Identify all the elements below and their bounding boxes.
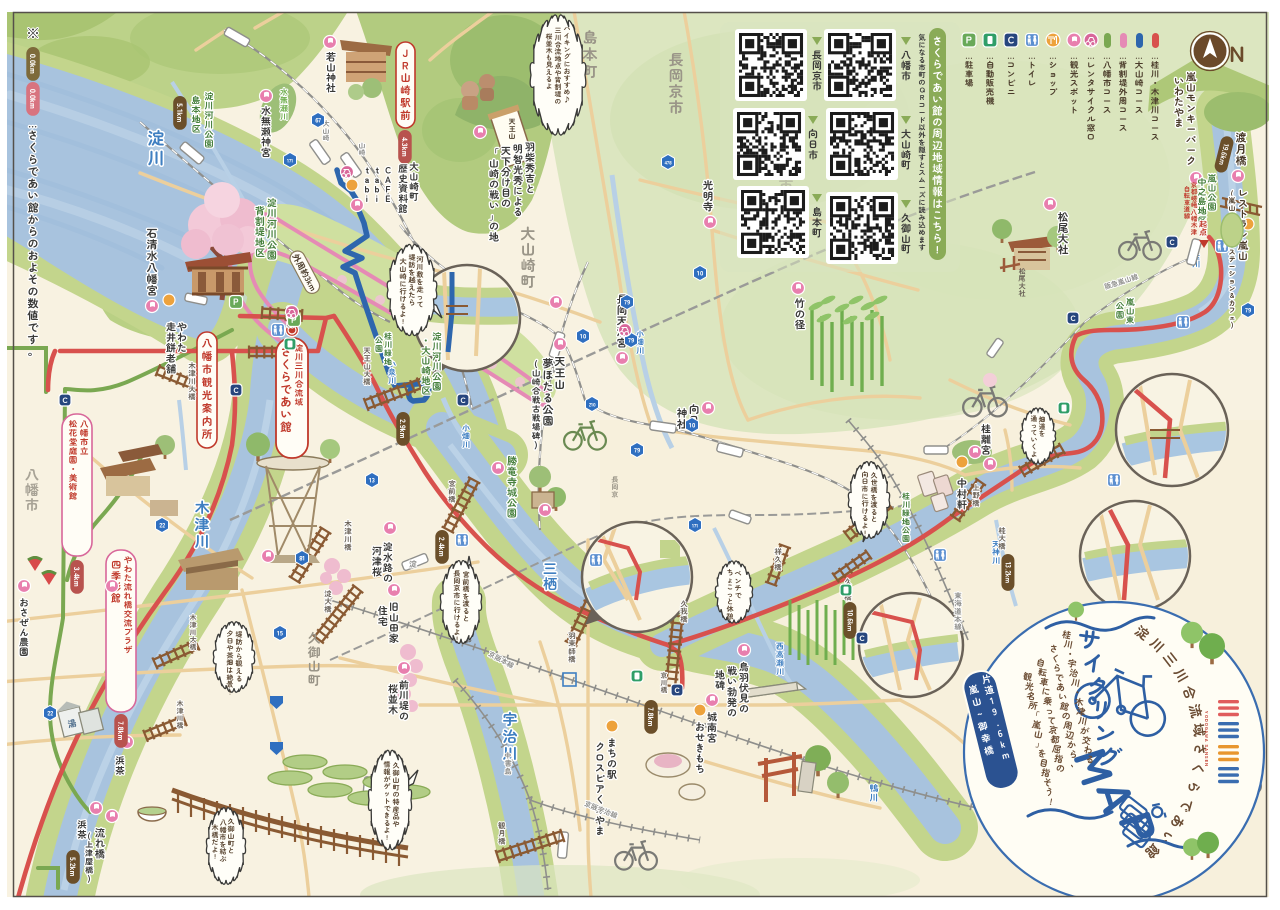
svg-text:八幡市: 八幡市 [901, 47, 911, 83]
svg-text:向日市: 向日市 [808, 126, 818, 162]
svg-text:松尾大社: 松尾大社 [1018, 267, 1026, 299]
svg-text:天下分け目の: 天下分け目の [501, 143, 511, 211]
svg-text:おせきもち: おせきもち [695, 719, 705, 776]
svg-text:C: C [674, 685, 679, 696]
svg-text:(嵐山ビジターズステーション&カフェ): (嵐山ビジターズステーション&カフェ) [1229, 189, 1237, 330]
svg-text:大山崎町: 大山崎町 [520, 223, 535, 292]
svg-text:桂大橋: 桂大橋 [997, 525, 1006, 552]
svg-text:C: C [233, 385, 238, 396]
svg-text:N: N [1229, 37, 1244, 69]
svg-text:桂川緑地公園: 桂川緑地公園 [901, 491, 910, 545]
svg-text:宮前橋を渡ると: 宮前橋を渡ると [463, 570, 470, 624]
svg-text:…大山崎コース: …大山崎コース [1135, 50, 1144, 116]
svg-text:八幡市: 八幡市 [25, 465, 40, 515]
svg-text:10.6km: 10.6km [844, 608, 855, 631]
svg-text:嵐山東: 嵐山東 [1126, 296, 1135, 326]
svg-text:走井餅老舗: 走井餅老舗 [165, 319, 177, 376]
svg-text:鳥羽伏見の: 鳥羽伏見の [739, 659, 750, 716]
svg-text:210: 210 [589, 402, 596, 409]
svg-text:夢ほたる公園: 夢ほたる公園 [543, 355, 554, 429]
svg-text:中書島: 中書島 [504, 750, 512, 777]
svg-text:若山神社: 若山神社 [325, 49, 336, 95]
svg-text:2.9km: 2.9km [397, 419, 408, 439]
svg-text:C: C [1169, 237, 1174, 248]
svg-text:河津桜: 河津桜 [372, 543, 382, 579]
svg-text:桂離宮: 桂離宮 [981, 421, 992, 457]
svg-text:天王山大橋: 天王山大橋 [363, 345, 371, 387]
svg-text:67: 67 [315, 115, 321, 125]
svg-text:171: 171 [692, 523, 698, 530]
svg-text:さくらであい館の周辺地域情報はこちら!: さくらであい館の周辺地域情報はこちら! [931, 34, 943, 258]
svg-text:81: 81 [299, 553, 305, 563]
svg-text:…駐車場: …駐車場 [964, 50, 974, 89]
svg-text:久御山町の特産品や: 久御山町の特産品や [392, 761, 400, 829]
svg-text:7.8km: 7.8km [115, 721, 126, 741]
svg-text:おさぜん農園: おさぜん農園 [19, 595, 29, 659]
svg-text:前川堤の: 前川堤の [399, 677, 409, 724]
svg-text:木津川橋: 木津川橋 [344, 518, 352, 552]
svg-text:旧山田家: 旧山田家 [389, 599, 399, 646]
svg-text:(山崎合戦古戦場碑): (山崎合戦古戦場碑) [531, 358, 541, 451]
svg-text:畑道を: 畑道を [1039, 414, 1046, 438]
svg-text:C: C [859, 633, 864, 644]
svg-text:山崎: 山崎 [359, 141, 366, 158]
svg-text:公園: 公園 [1116, 300, 1125, 321]
svg-text:まちの駅: まちの駅 [607, 735, 617, 782]
svg-text:5.1km: 5.1km [174, 102, 185, 122]
svg-text:2.4km: 2.4km [436, 537, 447, 557]
svg-text:住宅: 住宅 [378, 603, 389, 629]
svg-text:長岡京市: 長岡京市 [668, 49, 683, 118]
svg-text:・大山崎地区: ・大山崎地区 [420, 333, 431, 397]
svg-text:…トイレ: …トイレ [1028, 50, 1037, 89]
svg-text:水無瀬川: 水無瀬川 [280, 87, 289, 123]
svg-text:淀川河川公園: 淀川河川公園 [204, 90, 214, 151]
svg-text:明智光秀による: 明智光秀による [513, 141, 524, 219]
svg-text:C: C [62, 395, 67, 406]
svg-text:0.0km: 0.0km [27, 89, 38, 109]
svg-text:浜茶: 浜茶 [77, 817, 87, 841]
svg-text:嵐山公園: 嵐山公園 [1207, 172, 1217, 214]
svg-text:やわた: やわた [177, 319, 187, 355]
svg-text:…さくらであい館からのおよその数値です。: …さくらであい館からのおよその数値です。 [28, 115, 40, 359]
svg-text:0.0km: 0.0km [27, 54, 38, 74]
svg-text:起点: 起点 [1199, 219, 1207, 238]
svg-text:戦い勃発の: 戦い勃発の [726, 663, 738, 720]
svg-text:淀川: 淀川 [148, 124, 165, 169]
svg-text:城南宮: 城南宮 [706, 709, 718, 745]
svg-text:5.2km: 5.2km [67, 856, 78, 877]
svg-text:観月橋: 観月橋 [497, 820, 506, 847]
svg-text:木津川大橋: 木津川大橋 [189, 613, 197, 653]
svg-text:久御山町と: 久御山町と [228, 817, 235, 856]
svg-text:…ショップ: …ショップ [1049, 50, 1058, 98]
svg-text:鴨川: 鴨川 [869, 782, 878, 804]
svg-text:大山崎町: 大山崎町 [409, 159, 419, 203]
svg-text:三川合流地点や背割堤の: 三川合流地点や背割堤の [554, 25, 562, 106]
svg-text:長岡京市に行けるよ!: 長岡京市に行けるよ! [453, 569, 461, 645]
svg-text:…観光スポット: …観光スポット [1069, 50, 1079, 116]
svg-text:…レンタサイクル窓口: …レンタサイクル窓口 [1086, 50, 1096, 143]
svg-text:長岡京: 長岡京 [612, 475, 619, 500]
svg-text:島本町: 島本町 [811, 204, 822, 240]
svg-text:河川敷を走って: 河川敷を走って [416, 255, 424, 310]
svg-text:浜茶: 浜茶 [115, 753, 125, 777]
svg-text:夕日や茶畑は絶景!: 夕日や茶畑は絶景! [227, 629, 234, 697]
svg-text:P: P [233, 295, 239, 308]
svg-text:桜並木: 桜並木 [388, 681, 399, 717]
svg-text:…桂川・木津川コース: …桂川・木津川コース [1150, 50, 1161, 143]
svg-text:さくらであい館: さくらであい館 [279, 344, 292, 435]
svg-text:13: 13 [368, 475, 375, 485]
svg-text:桜並木も見えるよ: 桜並木も見えるよ [545, 31, 553, 91]
svg-text:嵐山モンキーパーク: 嵐山モンキーパーク [1186, 69, 1196, 168]
svg-text:…背割堤外周コース: …背割堤外周コース [1118, 50, 1128, 134]
svg-text:久御山町: 久御山町 [307, 628, 320, 689]
svg-text:クロスピアくみやま: クロスピアくみやま [595, 739, 605, 838]
svg-text:C: C [1070, 313, 1075, 324]
svg-text:桂川緑地: 桂川緑地 [383, 331, 392, 368]
svg-text:淀川河川公園: 淀川河川公園 [432, 329, 442, 393]
svg-text:79: 79 [634, 445, 640, 455]
svg-text:※: ※ [26, 23, 39, 42]
svg-text:水無瀬神宮: 水無瀬神宮 [261, 103, 272, 160]
svg-text:3.4km: 3.4km [71, 567, 82, 587]
svg-text:渡月橋: 渡月橋 [1236, 129, 1248, 168]
svg-text:松花堂庭園・美術館: 松花堂庭園・美術館 [68, 418, 78, 502]
svg-text:祥久橋: 祥久橋 [773, 546, 782, 573]
svg-text:「山崎の戦い」の地: 「山崎の戦い」の地 [489, 145, 500, 244]
svg-text:情報がゲットできるよ!: 情報がゲットできるよ! [384, 760, 391, 843]
svg-text:宮前橋: 宮前橋 [448, 478, 456, 505]
svg-text:光明寺: 光明寺 [703, 178, 714, 215]
svg-text:島本地区: 島本地区 [190, 94, 200, 136]
svg-text:松尾大社: 松尾大社 [1057, 210, 1069, 258]
svg-text:八幡市を結ぶ: 八幡市を結ぶ [219, 818, 227, 865]
svg-text:7.8km: 7.8km [645, 707, 656, 727]
svg-text:79: 79 [1245, 305, 1251, 315]
svg-text:478: 478 [663, 160, 672, 167]
svg-text:気になる市町のQRコード以外を隠すとスムーズに読み込めます: 気になる市町のQRコード以外を隠すとスムーズに読み込めます [918, 33, 926, 253]
svg-text:13.2km: 13.2km [1002, 561, 1013, 584]
svg-text:ちょこっと休憩: ちょこっと休憩 [727, 568, 734, 622]
svg-text:地碑: 地碑 [714, 667, 726, 693]
svg-text:京都嵯峨八幡木津: 京都嵯峨八幡木津 [1191, 180, 1198, 237]
svg-text:大山崎町: 大山崎町 [900, 126, 911, 172]
svg-text:久我橋: 久我橋 [680, 598, 688, 625]
svg-text:羽束師橋: 羽束師橋 [568, 630, 576, 664]
svg-text:P: P [966, 32, 972, 47]
svg-text:淀水路の: 淀水路の [383, 539, 394, 586]
svg-text:天王山: 天王山 [508, 117, 516, 142]
svg-text:天王山: 天王山 [555, 353, 566, 392]
svg-text:流れ橋: 流れ橋 [95, 825, 106, 861]
svg-text:京川橋: 京川橋 [661, 671, 668, 696]
svg-text:79: 79 [628, 335, 634, 345]
svg-text:淀川河川公園: 淀川河川公園 [267, 195, 277, 263]
svg-text:中村軒: 中村軒 [957, 476, 968, 513]
svg-text:自転車道線: 自転車道線 [1184, 184, 1191, 221]
svg-text:小畑川: 小畑川 [461, 423, 470, 451]
svg-text:竹の径: 竹の径 [795, 296, 806, 333]
svg-text:ベンチで: ベンチで [735, 569, 742, 601]
svg-text:久世橋を渡ると: 久世橋を渡ると [871, 471, 878, 525]
svg-text:堤防を越えたら: 堤防を越えたら [407, 253, 415, 308]
svg-text:やわた流れ橋交流プラザ: やわた流れ橋交流プラザ [123, 554, 133, 656]
svg-text:堤防から観える: 堤防から観える [235, 630, 243, 684]
svg-text:石清水八幡宮: 石清水八幡宮 [147, 225, 158, 298]
svg-text:久御山町: 久御山町 [900, 210, 911, 256]
svg-text:長岡京市: 長岡京市 [812, 47, 822, 93]
svg-text:いわたやま: いわたやま [1174, 73, 1184, 130]
svg-text:10: 10 [696, 268, 703, 278]
svg-text:三栖: 三栖 [543, 559, 558, 594]
svg-text:79: 79 [624, 297, 630, 307]
svg-text:西高瀬川: 西高瀬川 [776, 641, 785, 678]
svg-text:YODOGAWA SANSEN: YODOGAWA SANSEN [1203, 711, 1209, 767]
svg-text:ハイキングにおすすめ♪: ハイキングにおすすめ♪ [564, 23, 571, 104]
svg-text:C: C [1008, 32, 1015, 47]
svg-text:東海道本線: 東海道本線 [953, 590, 962, 632]
svg-text:10: 10 [688, 420, 695, 430]
svg-text:大山崎に行けるよ!: 大山崎に行けるよ! [398, 257, 407, 327]
svg-text:4.3km: 4.3km [399, 136, 410, 157]
svg-text:向日市に行けるよ!: 向日市に行けるよ! [861, 470, 869, 538]
svg-text:171: 171 [287, 158, 293, 165]
svg-text:10: 10 [579, 331, 586, 341]
svg-text:淀: 淀 [409, 559, 417, 570]
svg-text:羽柴秀吉と: 羽柴秀吉と [524, 139, 536, 196]
svg-text:木津川橋: 木津川橋 [176, 699, 184, 731]
svg-text:背割堤地区: 背割堤地区 [255, 203, 266, 260]
svg-text:勝竜寺城公園: 勝竜寺城公園 [506, 453, 517, 521]
svg-text:…八幡市コース: …八幡市コース [1103, 50, 1112, 116]
svg-text:木津川大橋: 木津川大橋 [188, 360, 196, 402]
svg-text:15: 15 [276, 628, 283, 638]
svg-text:公園: 公園 [375, 335, 383, 355]
svg-text:…自動販売機: …自動販売機 [985, 50, 995, 107]
svg-text:C: C [460, 395, 465, 406]
svg-text:八幡市立: 八幡市立 [80, 418, 89, 457]
svg-text:木津川: 木津川 [194, 497, 209, 552]
svg-text:通っていくよ: 通っていくよ [1031, 413, 1038, 459]
svg-text:淀大橋: 淀大橋 [324, 588, 332, 615]
svg-text:歴史資料館: 歴史資料館 [397, 161, 408, 215]
svg-text:淀川三川合流域: 淀川三川合流域 [294, 342, 304, 408]
svg-text:上野橋: 上野橋 [972, 482, 980, 509]
svg-text:八幡市観光案内所: 八幡市観光案内所 [201, 336, 213, 442]
svg-text:…コンビニ: …コンビニ [1007, 50, 1016, 98]
